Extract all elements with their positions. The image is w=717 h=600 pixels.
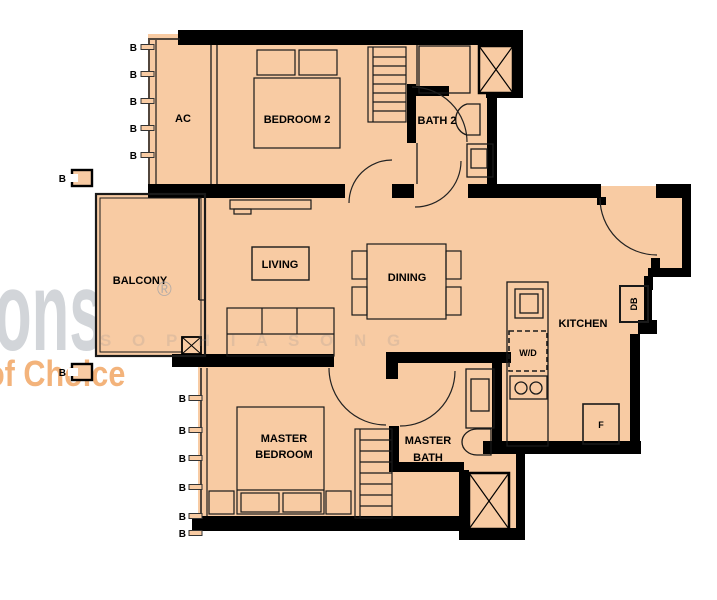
bath2-label: BATH 2 [418, 115, 457, 127]
beam-label: B [179, 529, 186, 540]
beam-label: B [179, 483, 186, 494]
dining-label: DINING [388, 272, 427, 284]
beam-label: B [130, 151, 137, 162]
beam-label: B [179, 426, 186, 437]
master-bath-label-line1: MASTER [405, 435, 452, 447]
beam-label: B [179, 454, 186, 465]
shaft-cross-icon-top [479, 46, 513, 93]
beam-label: B [179, 512, 186, 523]
kitchen-label: KITCHEN [559, 318, 608, 330]
beam-label: B [130, 97, 137, 108]
master-bedroom-label-line1: MASTER [261, 433, 308, 445]
ac-label: AC [175, 113, 191, 125]
beam-marker-lone-upper: B [59, 170, 92, 186]
floor-plan-page: ons of Choice [0, 0, 717, 600]
beam-label: B [130, 70, 137, 81]
beam-label: B [179, 394, 186, 405]
beam-label: B [130, 124, 137, 135]
bath2-door-leaf [407, 84, 416, 143]
beam-label: B [59, 174, 66, 185]
beam-label: B [130, 43, 137, 54]
living-label: LIVING [262, 259, 299, 271]
fridge-label: F [598, 420, 604, 430]
shaft-cross-icon-bottom [469, 473, 509, 529]
master-bath-label-line2: BATH [413, 452, 443, 464]
distribution-board-label: DB [629, 297, 639, 310]
watermark-letter-row: S O P H I A S O N G [100, 331, 408, 350]
washer-dryer-label: W/D [519, 348, 537, 358]
floor-plan-drawing: ons of Choice [0, 0, 717, 600]
beam-label: B [59, 368, 66, 379]
registered-mark-icon: ® [157, 279, 172, 301]
bedroom2-label: BEDROOM 2 [264, 114, 331, 126]
master-bedroom-label-line2: BEDROOM [255, 449, 312, 461]
